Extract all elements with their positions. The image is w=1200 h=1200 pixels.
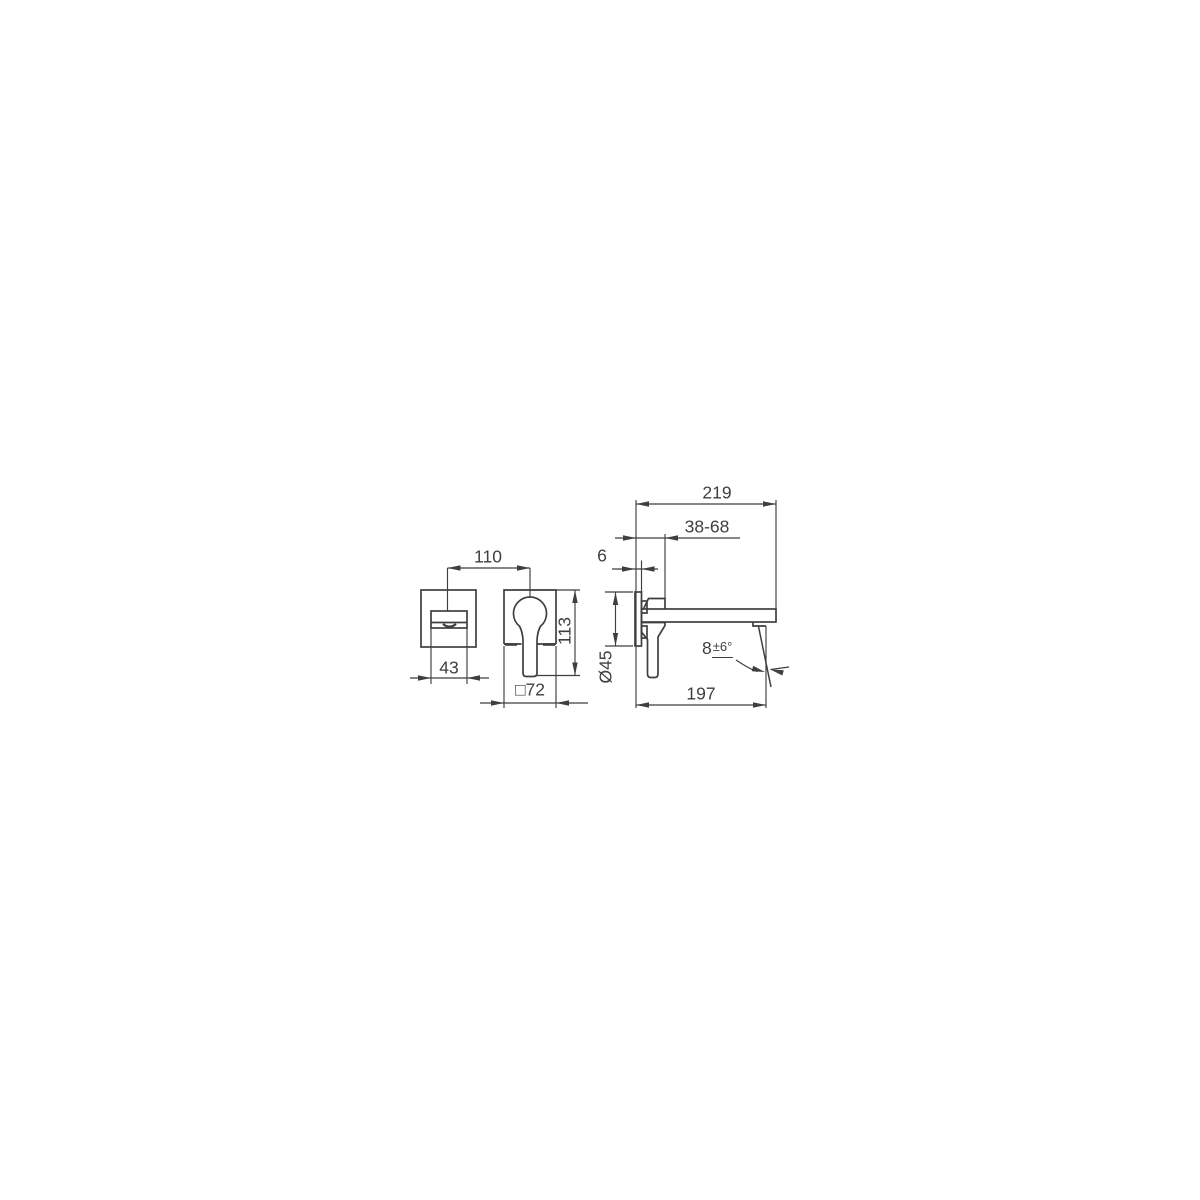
dim-label-stream-angle: 8±6° bbox=[702, 640, 733, 658]
arrowhead bbox=[448, 565, 461, 570]
dim-label-spout-width: 43 bbox=[439, 659, 458, 677]
extension-lines bbox=[605, 592, 633, 646]
arrowhead bbox=[467, 675, 480, 680]
angle-tolerance-value: ±6° bbox=[712, 640, 734, 658]
arrowhead bbox=[636, 702, 649, 707]
spout-front-view bbox=[421, 590, 476, 647]
arrowhead bbox=[753, 702, 766, 707]
arrowhead bbox=[763, 501, 776, 506]
drawing-linework bbox=[0, 0, 1200, 1200]
technical-drawing-canvas: 110 43 113 □72 219 38-68 6 Ø45 197 8±6° bbox=[0, 0, 1200, 1200]
angle-arrow-tail bbox=[771, 667, 790, 670]
handle-front-view bbox=[504, 590, 556, 677]
dim-label-spacing: 110 bbox=[474, 548, 502, 566]
lever-handle-front bbox=[514, 597, 547, 677]
arrowhead bbox=[613, 592, 618, 605]
spout-side bbox=[642, 609, 777, 622]
arrowhead bbox=[636, 501, 649, 506]
arrowhead bbox=[623, 535, 636, 540]
dim-label-handle-height: 113 bbox=[556, 617, 574, 645]
arrowhead bbox=[771, 670, 784, 676]
water-stream-line bbox=[759, 627, 772, 688]
arrowhead bbox=[491, 700, 504, 705]
arrowhead bbox=[613, 633, 618, 646]
lever-side bbox=[642, 623, 666, 678]
dimension-110 bbox=[448, 565, 531, 611]
dim-label-mounting-depth: 38-68 bbox=[685, 518, 730, 536]
handle-escutcheon-plate bbox=[504, 590, 556, 644]
spout-face bbox=[431, 611, 467, 628]
dim-label-spout-projection: 197 bbox=[686, 685, 715, 703]
dimension-38-68 bbox=[615, 534, 740, 599]
dim-label-connection-diameter: Ø45 bbox=[597, 650, 615, 683]
arrowhead bbox=[572, 590, 577, 603]
dim-label-plate-size: □72 bbox=[515, 681, 545, 699]
dimension-45 bbox=[605, 592, 633, 646]
arrowhead bbox=[418, 675, 431, 680]
arrowhead bbox=[572, 663, 577, 676]
arrowhead bbox=[556, 700, 569, 705]
aerator-arc bbox=[443, 624, 456, 627]
arrowhead bbox=[642, 566, 655, 571]
angle-base-value: 8 bbox=[702, 640, 712, 658]
arrowhead bbox=[752, 666, 765, 672]
arrowhead bbox=[622, 566, 635, 571]
dimension-6 bbox=[612, 561, 658, 593]
arrowhead bbox=[665, 535, 678, 540]
dim-label-total-projection: 219 bbox=[702, 484, 731, 502]
arrowhead bbox=[517, 565, 530, 570]
dim-label-plate-thickness: 6 bbox=[597, 547, 607, 565]
dimension-angle bbox=[736, 660, 789, 676]
